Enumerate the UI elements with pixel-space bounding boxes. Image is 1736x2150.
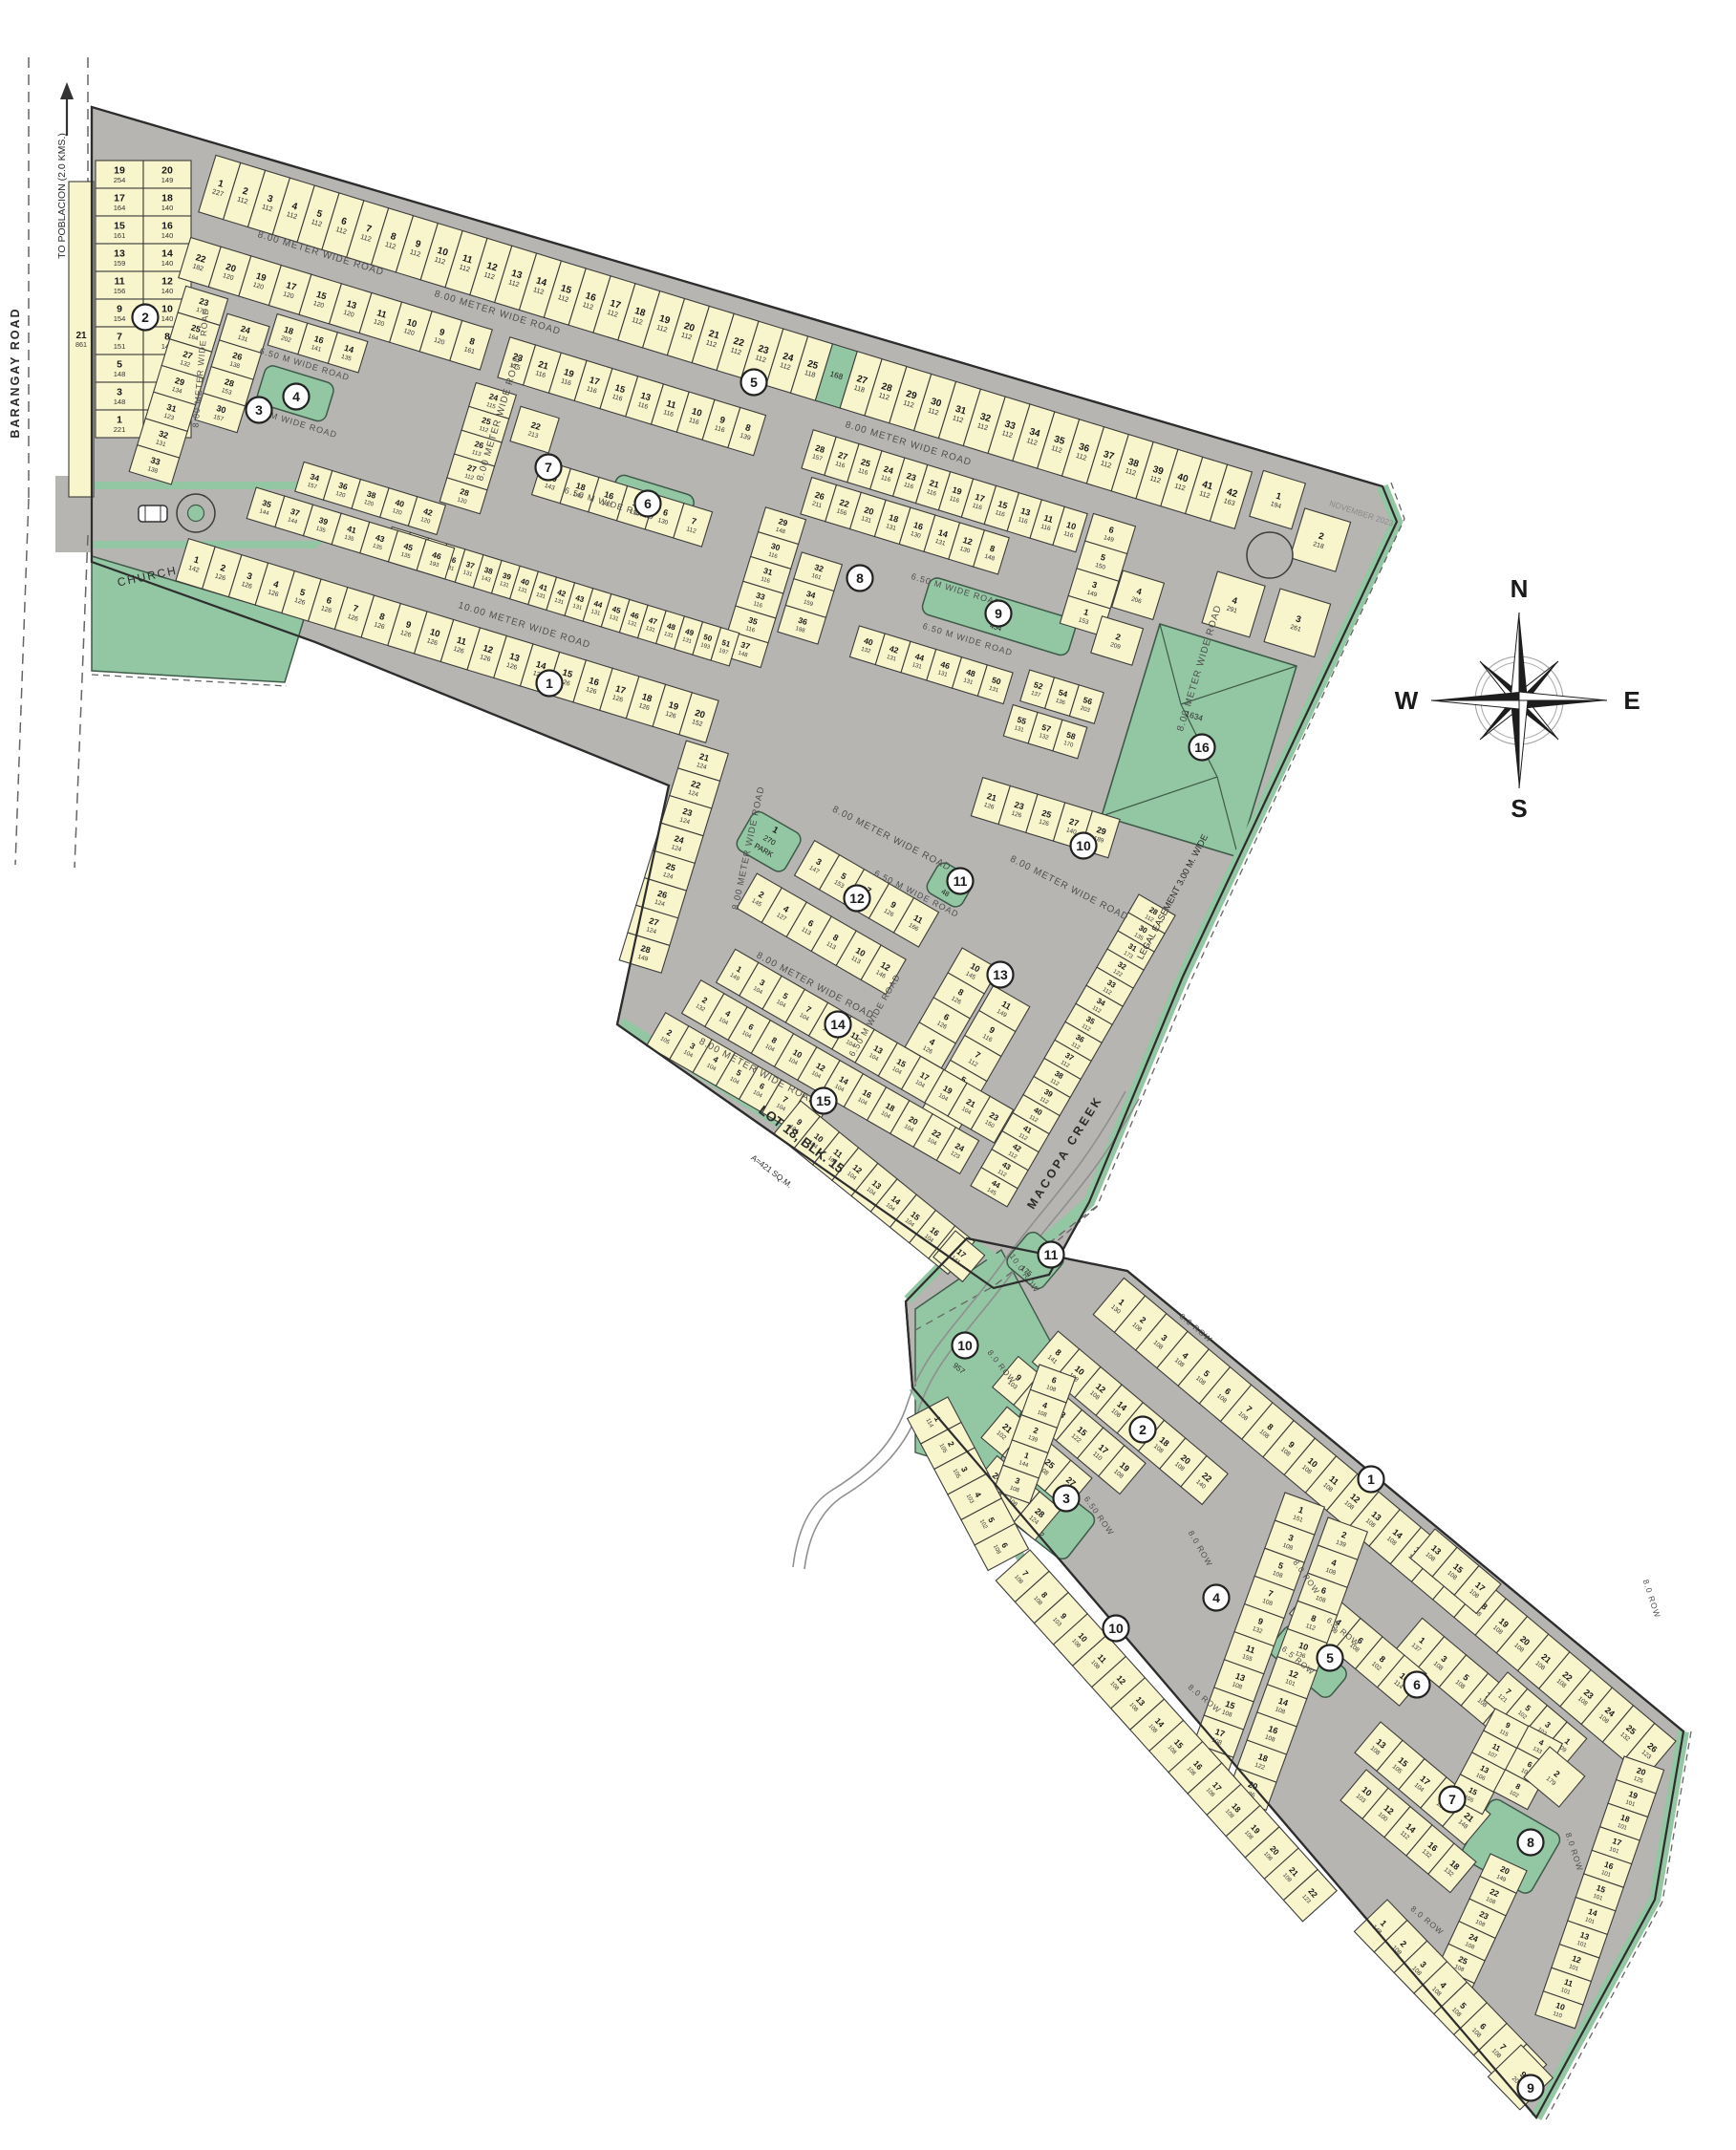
block-circle-9: 9 (986, 601, 1012, 627)
block-number: 15 (816, 1093, 831, 1108)
lot-number: 20 (161, 165, 173, 177)
lot-area: 140 (161, 259, 174, 268)
map-label: TO POBLACION (2.0 KMS.) (56, 133, 68, 259)
block-circle-6: 6 (635, 491, 661, 517)
block-circle-1: 1 (1359, 1467, 1384, 1493)
block-circle-12: 12 (845, 886, 870, 912)
block-circle-1: 1 (537, 671, 563, 697)
block-circle-3: 3 (246, 398, 272, 423)
lot-area: 156 (114, 287, 126, 295)
block-number: 2 (1139, 1422, 1147, 1437)
lot-area: 148 (114, 398, 126, 406)
lot-number: 5 (117, 359, 122, 371)
compass-rose: NSEW (1395, 574, 1640, 823)
block-circle-8: 8 (847, 566, 873, 591)
lot-area: 861 (75, 340, 87, 349)
block-number: 8 (1527, 1835, 1534, 1850)
map-label: A=421 SQ.M. (749, 1152, 794, 1190)
block-number: 14 (830, 1017, 846, 1032)
lot-area: 159 (114, 259, 126, 268)
lot-area: 140 (161, 314, 174, 323)
lot-strip-lot-21: 21861 (69, 182, 94, 497)
block-circle-5: 5 (741, 370, 767, 396)
car-icon (139, 505, 167, 522)
block-circle-5: 5 (1318, 1645, 1343, 1671)
block-circle-10: 10 (1071, 833, 1097, 859)
lot-area: 140 (161, 204, 174, 212)
block-circle-4: 4 (284, 384, 310, 410)
lot-area: 161 (114, 231, 126, 240)
block-circle-16: 16 (1189, 735, 1215, 761)
compass-point (1519, 700, 1528, 788)
lot-number: 1 (117, 415, 122, 426)
block-number: 11 (954, 873, 968, 889)
block-number: 10 (1076, 838, 1091, 853)
map-label: BARANGAY ROAD (9, 307, 22, 438)
lot-area: 140 (161, 287, 174, 295)
block-number: 5 (1326, 1650, 1334, 1666)
block-number: 9 (995, 606, 1002, 621)
lot-number: 17 (114, 193, 125, 204)
compass-s: S (1511, 794, 1527, 823)
lot-area: 149 (161, 176, 174, 184)
lot-area: 151 (114, 342, 126, 351)
compass-point (1519, 692, 1607, 700)
block-circle-13: 13 (988, 962, 1014, 988)
block-circle-3: 3 (1054, 1486, 1080, 1512)
compass-e: E (1623, 686, 1640, 715)
lot-number: 11 (114, 276, 124, 288)
block-number: 4 (1212, 1590, 1220, 1605)
lot-number: 9 (117, 304, 122, 315)
lot-number: 16 (161, 221, 173, 232)
road-label: 8.0 ROW (1641, 1579, 1662, 1620)
block-number: 3 (255, 402, 263, 418)
block-number: 9 (1527, 2080, 1534, 2096)
block-circle-7: 7 (536, 455, 562, 481)
block-number: 3 (1062, 1491, 1070, 1506)
plat-map-page: 1512834541270PARK48572192411175218611925… (0, 0, 1736, 2150)
lot-area: 140 (161, 231, 174, 240)
lot-area: 148 (114, 370, 126, 378)
block-circle-4: 4 (1204, 1585, 1230, 1611)
block-number: 13 (993, 967, 1008, 982)
block-number: 6 (1413, 1677, 1421, 1692)
block-circle-10: 10 (953, 1333, 978, 1359)
block-number: 1 (1367, 1472, 1375, 1487)
compass-n: N (1511, 574, 1529, 603)
north-arrow-head (60, 82, 74, 99)
block-number: 7 (1448, 1792, 1456, 1807)
block-number: 4 (292, 389, 300, 404)
block-number: 12 (849, 891, 865, 906)
lot-number: 12 (161, 276, 173, 288)
block-number: 10 (957, 1338, 973, 1353)
compass-w: W (1395, 686, 1419, 715)
lot-area: 154 (114, 314, 126, 323)
lot-number: 3 (117, 387, 122, 398)
block-number: 1 (546, 676, 553, 691)
block-circle-11: 11 (1039, 1242, 1064, 1268)
lot-strip-blk2-left: 1925417164151611315911156915471515148314… (96, 161, 143, 438)
block-number: 6 (644, 496, 652, 511)
lot-area: 221 (114, 425, 126, 434)
block-circle-10: 10 (1104, 1616, 1129, 1642)
block-circle-9: 9 (1518, 2075, 1544, 2101)
lot-number: 19 (114, 165, 125, 177)
block-number: 5 (750, 375, 758, 390)
roundabout-island (188, 505, 204, 522)
lot-number: 18 (161, 193, 173, 204)
block-circle-8: 8 (1518, 1830, 1544, 1856)
block-number: 7 (545, 460, 552, 475)
lot-number: 7 (117, 332, 122, 343)
block-number: 16 (1194, 740, 1210, 755)
block-circle-11: 11 (948, 869, 974, 894)
block-circle-7: 7 (1440, 1787, 1466, 1813)
block-circle-6: 6 (1404, 1672, 1430, 1698)
lot-number: 14 (161, 248, 173, 260)
lot-number: 10 (161, 304, 173, 315)
block-number: 11 (1044, 1247, 1059, 1262)
barangay-road-dash (15, 499, 29, 865)
block-number: 2 (141, 310, 149, 325)
lot-number: 15 (114, 221, 125, 232)
lot-number: 13 (114, 248, 125, 260)
block-circle-14: 14 (825, 1012, 851, 1038)
barangay-road-dash (75, 535, 88, 868)
lot-area: 254 (114, 176, 126, 184)
block-circle-2: 2 (133, 305, 159, 331)
subdivision-plat-map: 1512834541270PARK48572192411175218611925… (0, 0, 1736, 2150)
block-circle-15: 15 (811, 1088, 837, 1114)
cul-de-sac (1247, 532, 1293, 578)
block-number: 10 (1108, 1621, 1124, 1636)
lot-area: 164 (114, 204, 126, 212)
block-circle-2: 2 (1130, 1417, 1156, 1443)
block-number: 8 (856, 570, 864, 586)
compass-point (1431, 700, 1519, 709)
compass-point (1511, 613, 1519, 700)
